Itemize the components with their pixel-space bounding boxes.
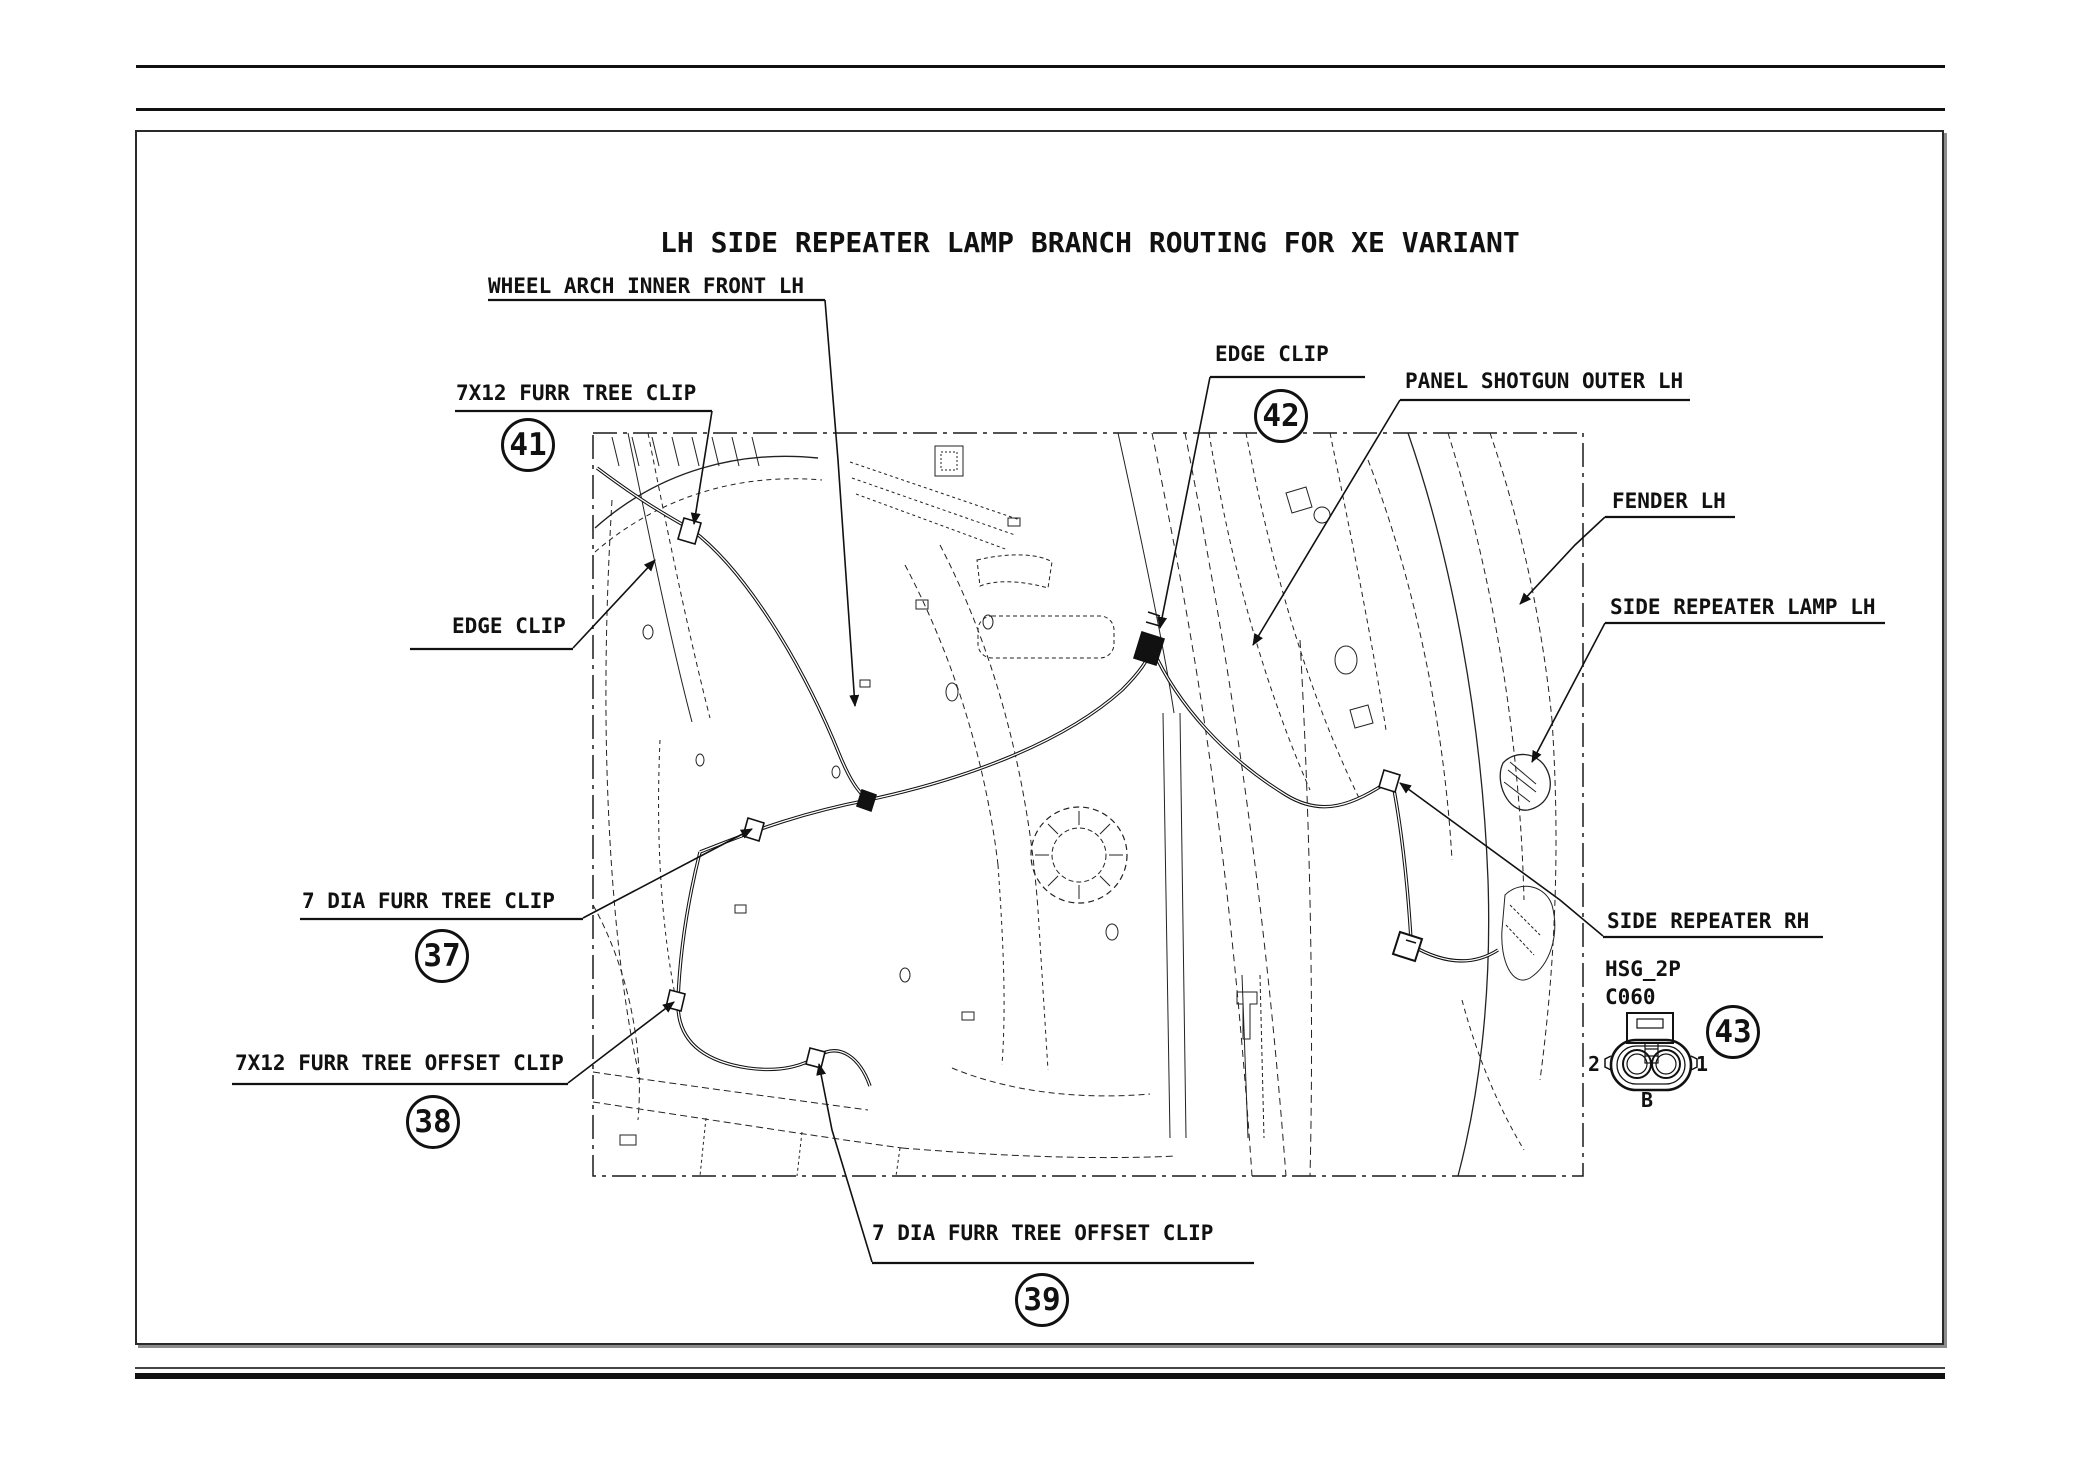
leader-side-repeater-lamp	[1532, 623, 1605, 762]
balloon-41: 41	[501, 418, 555, 472]
side-repeater-clip	[1379, 770, 1400, 792]
leader-wheel-arch	[825, 300, 855, 706]
page-title: LH SIDE REPEATER LAMP BRANCH ROUTING FOR…	[660, 226, 1520, 259]
label-7x12-furr-tree-clip: 7X12 FURR TREE CLIP	[456, 382, 696, 405]
leader-furr-tree-37	[583, 829, 752, 918]
connector-pin-2: 2	[1588, 1052, 1600, 1076]
label-side-repeater-lamp-lh: SIDE REPEATER LAMP LH	[1610, 596, 1876, 619]
label-connector-housing: HSG_2P	[1605, 958, 1681, 981]
furr-tree-clip-41	[678, 518, 701, 544]
leader-side-repeater-rh	[1400, 783, 1603, 936]
label-panel-shotgun-outer-lh: PANEL SHOTGUN OUTER LH	[1405, 370, 1683, 393]
furr-tree-clip-37	[743, 818, 764, 841]
label-7dia-furr-tree-offset-clip: 7 DIA FURR TREE OFFSET CLIP	[872, 1222, 1213, 1245]
leader-fender	[1520, 517, 1605, 604]
label-7x12-furr-tree-offset-clip: 7X12 FURR TREE OFFSET CLIP	[235, 1052, 564, 1075]
label-wheel-arch-inner-front-lh: WHEEL ARCH INNER FRONT LH	[488, 275, 804, 298]
diagram-frame	[593, 433, 1583, 1176]
label-side-repeater-rh: SIDE REPEATER RH	[1607, 910, 1809, 933]
leader-furr-tree-41	[694, 411, 712, 524]
label-edge-clip-top: EDGE CLIP	[1215, 343, 1329, 366]
label-underlines	[232, 300, 1885, 1263]
balloon-39: 39	[1015, 1273, 1069, 1327]
balloon-43: 43	[1706, 1005, 1760, 1059]
side-repeater-connector-part	[1393, 932, 1422, 961]
balloon-42-number: 42	[1262, 398, 1299, 434]
label-fender-lh: FENDER LH	[1612, 490, 1726, 513]
drawing-page: LH SIDE REPEATER LAMP BRANCH ROUTING FOR…	[0, 0, 2080, 1471]
balloon-37-number: 37	[423, 938, 460, 974]
balloon-38: 38	[406, 1095, 460, 1149]
balloon-41-number: 41	[509, 427, 546, 463]
harness-routing	[597, 468, 1498, 1086]
leader-lines	[568, 300, 1605, 1262]
balloon-37: 37	[415, 929, 469, 983]
balloon-39-number: 39	[1023, 1282, 1060, 1318]
label-edge-clip-left: EDGE CLIP	[452, 615, 566, 638]
balloon-38-number: 38	[414, 1104, 451, 1140]
connector-drawing	[1605, 1013, 1697, 1090]
harness-clips	[666, 518, 1422, 1068]
furr-tree-clip-38	[666, 990, 685, 1011]
connector-cavity-b: B	[1641, 1088, 1653, 1112]
leader-edge-clip-left	[573, 560, 655, 648]
balloon-42: 42	[1254, 389, 1308, 443]
balloon-43-number: 43	[1714, 1014, 1751, 1050]
connector-pin-1: 1	[1696, 1052, 1708, 1076]
diagram-canvas	[0, 0, 2080, 1471]
leader-edge-clip-42	[1160, 377, 1210, 628]
leader-offset-clip-38	[568, 1002, 674, 1083]
label-connector-code: C060	[1605, 986, 1656, 1009]
leader-offset-clip-39	[819, 1064, 872, 1262]
furr-tree-clip-39	[806, 1048, 825, 1068]
label-7dia-furr-tree-clip: 7 DIA FURR TREE CLIP	[302, 890, 555, 913]
